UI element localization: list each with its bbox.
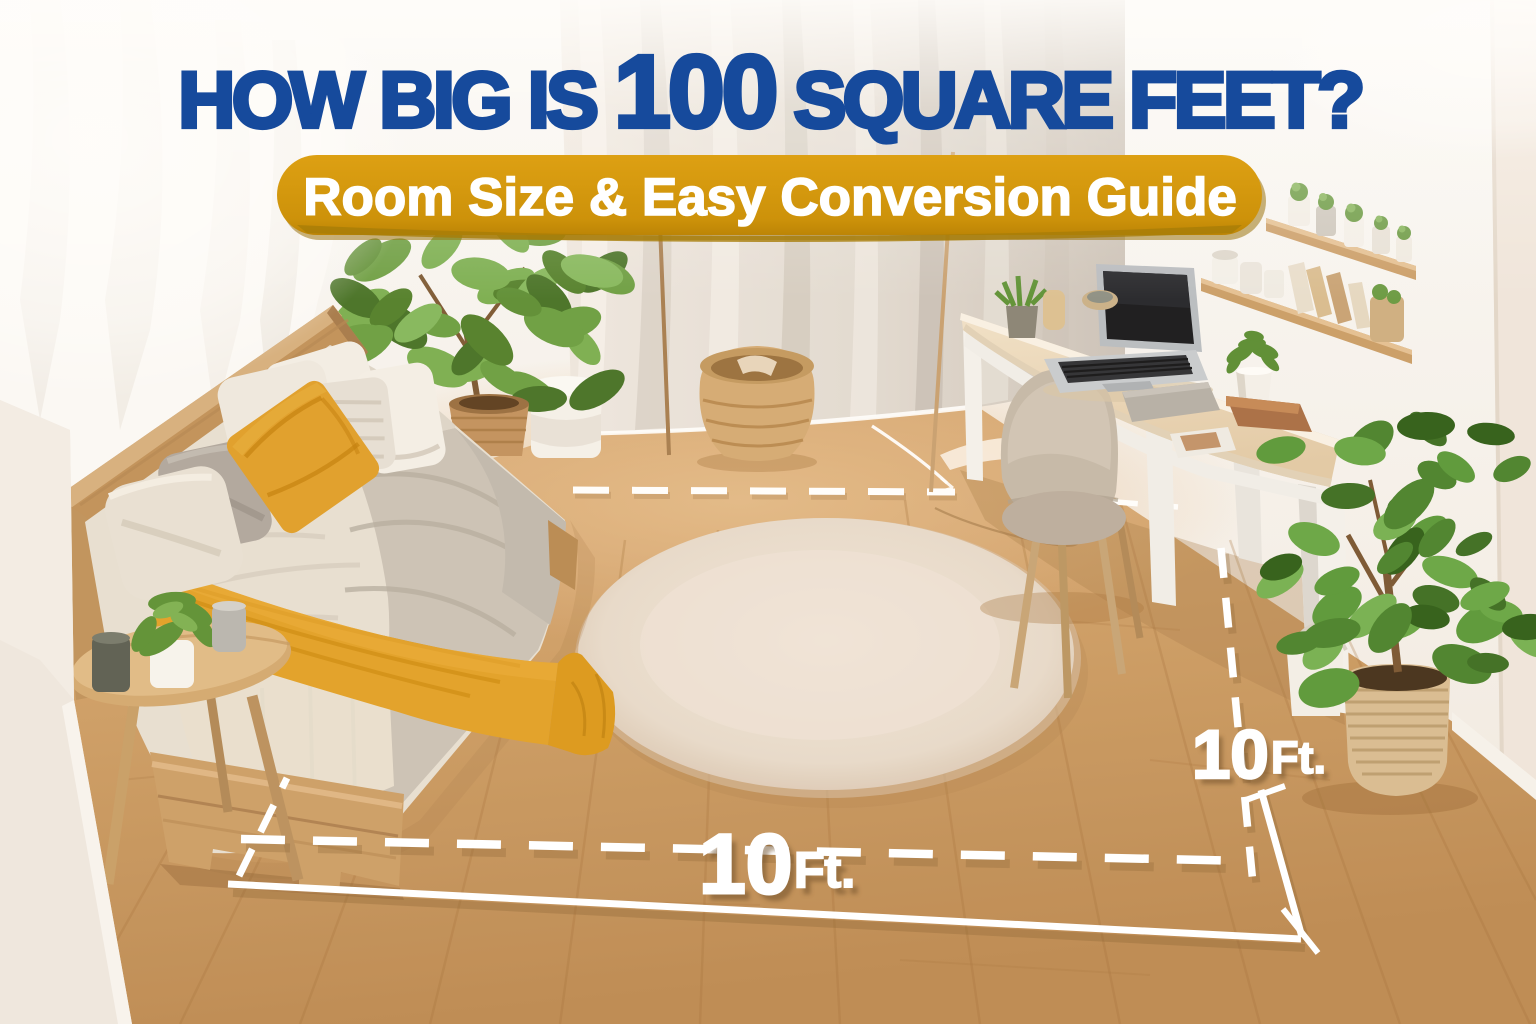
svg-text:Room Size & Easy Conversion Gu: Room Size & Easy Conversion Guide [303,168,1237,227]
svg-text:10: 10 [1192,716,1269,793]
svg-text:Ft.: Ft. [794,842,855,898]
svg-text:Ft.: Ft. [1271,732,1326,783]
svg-text:10: 10 [699,817,792,911]
